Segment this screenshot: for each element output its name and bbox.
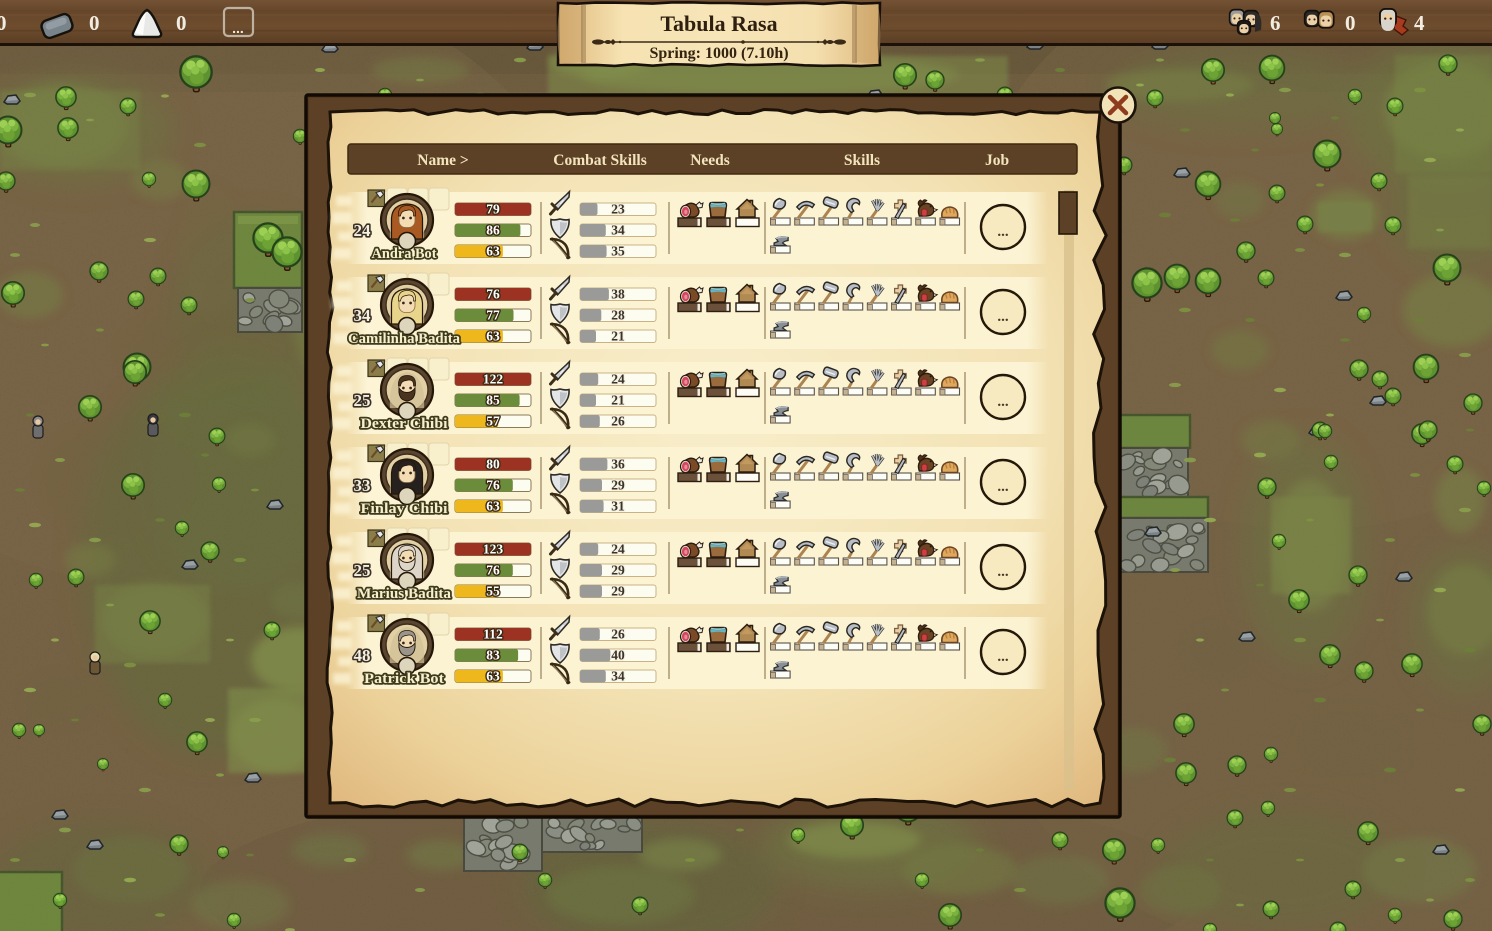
svg-text:25: 25 — [354, 561, 371, 580]
svg-text:63: 63 — [486, 243, 500, 258]
svg-text:24: 24 — [354, 221, 372, 240]
svg-text:57: 57 — [486, 413, 500, 428]
svg-text:...: ... — [997, 224, 1009, 240]
svg-text:Combat Skills: Combat Skills — [553, 152, 646, 169]
svg-text:63: 63 — [486, 498, 500, 513]
svg-text:Spring: 1000 (7.10h): Spring: 1000 (7.10h) — [649, 45, 788, 62]
svg-text:...: ... — [997, 564, 1009, 580]
svg-text:...: ... — [997, 649, 1009, 665]
svg-text:34: 34 — [611, 222, 625, 237]
svg-text:63: 63 — [486, 668, 500, 683]
svg-text:123: 123 — [483, 541, 504, 556]
svg-text:21: 21 — [611, 392, 625, 407]
svg-text:28: 28 — [611, 307, 625, 322]
svg-text:35: 35 — [611, 243, 625, 258]
svg-text:Dexter Chibi: Dexter Chibi — [361, 416, 448, 432]
svg-text:31: 31 — [611, 498, 625, 513]
svg-text:38: 38 — [611, 286, 625, 301]
svg-text:122: 122 — [483, 371, 504, 386]
svg-text:Tabula Rasa: Tabula Rasa — [660, 11, 777, 36]
svg-text:33: 33 — [354, 476, 371, 495]
svg-text:...: ... — [997, 394, 1009, 410]
svg-text:26: 26 — [611, 626, 625, 641]
svg-text:Job: Job — [985, 152, 1009, 169]
svg-text:34: 34 — [354, 306, 372, 325]
svg-text:21: 21 — [611, 328, 625, 343]
svg-text:Name >: Name > — [417, 152, 468, 169]
svg-text:77: 77 — [486, 307, 500, 322]
svg-text:55: 55 — [486, 583, 500, 598]
svg-text:29: 29 — [611, 583, 625, 598]
svg-text:24: 24 — [611, 371, 625, 386]
svg-text:Needs: Needs — [690, 152, 730, 169]
svg-text:79: 79 — [486, 201, 500, 216]
svg-text:34: 34 — [611, 668, 625, 683]
svg-text:25: 25 — [354, 391, 371, 410]
svg-text:0: 0 — [0, 11, 7, 35]
svg-text:26: 26 — [611, 413, 625, 428]
svg-text:76: 76 — [486, 286, 500, 301]
svg-text:63: 63 — [486, 328, 500, 343]
svg-text:83: 83 — [486, 647, 500, 662]
svg-text:48: 48 — [354, 646, 371, 665]
svg-text:Camilinha Badita: Camilinha Badita — [348, 331, 461, 347]
svg-text:0: 0 — [89, 11, 100, 35]
svg-text:76: 76 — [486, 477, 500, 492]
svg-text:85: 85 — [486, 392, 500, 407]
svg-text:0: 0 — [176, 11, 187, 35]
svg-text:112: 112 — [483, 626, 503, 641]
svg-text:...: ... — [997, 479, 1009, 495]
svg-text:29: 29 — [611, 477, 625, 492]
svg-text:24: 24 — [611, 541, 625, 556]
svg-text:86: 86 — [486, 222, 500, 237]
svg-text:36: 36 — [611, 456, 625, 471]
svg-text:...: ... — [232, 20, 244, 36]
svg-text:Andra Bot: Andra Bot — [372, 246, 437, 262]
svg-text:Skills: Skills — [844, 152, 880, 169]
svg-text:76: 76 — [486, 562, 500, 577]
svg-text:40: 40 — [611, 647, 625, 662]
svg-text:0: 0 — [1345, 11, 1356, 35]
svg-text:80: 80 — [486, 456, 500, 471]
svg-text:29: 29 — [611, 562, 625, 577]
svg-text:Finlay Chibi: Finlay Chibi — [361, 501, 448, 517]
svg-text:Marius Badita: Marius Badita — [357, 586, 452, 602]
svg-text:...: ... — [997, 309, 1009, 325]
svg-text:6: 6 — [1270, 11, 1281, 35]
svg-text:Patrick Bot: Patrick Bot — [364, 671, 444, 687]
svg-text:23: 23 — [611, 201, 625, 216]
svg-text:4: 4 — [1414, 11, 1425, 35]
